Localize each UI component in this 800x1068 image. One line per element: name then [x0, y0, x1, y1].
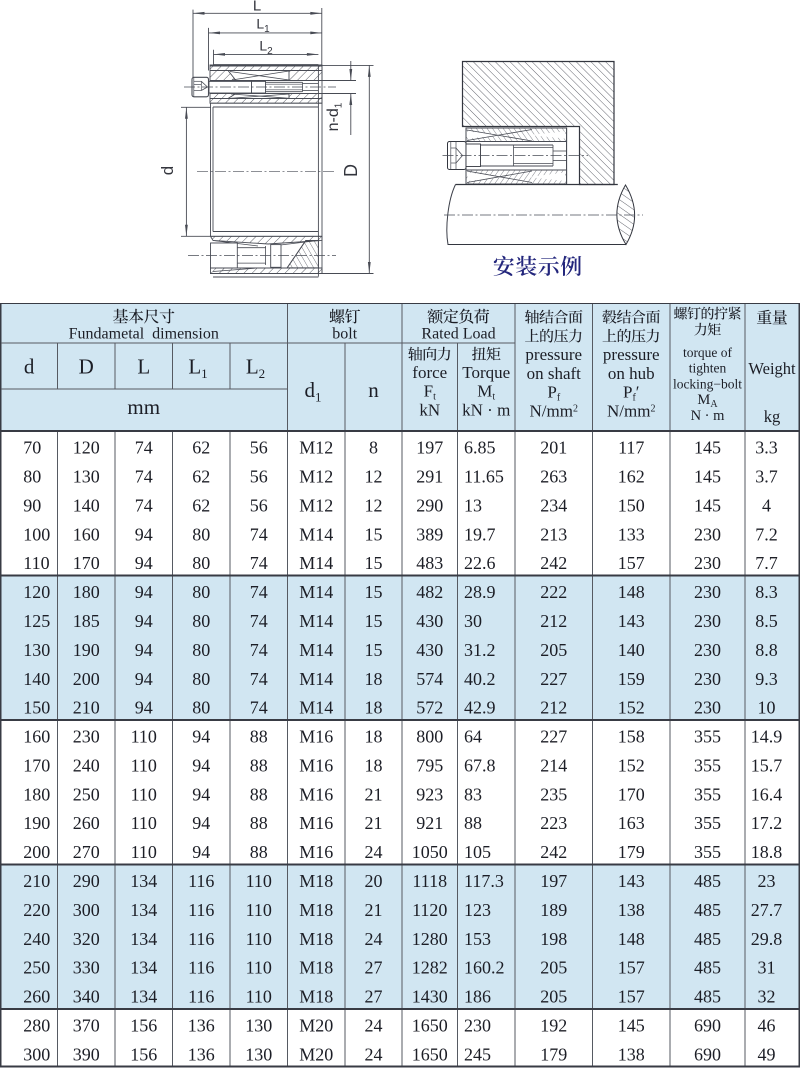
svg-text:690: 690 [694, 1044, 721, 1064]
svg-text:110: 110 [246, 987, 272, 1007]
svg-text:690: 690 [694, 1016, 721, 1036]
svg-text:170: 170 [73, 553, 100, 573]
svg-text:15.7: 15.7 [751, 755, 783, 775]
svg-text:94: 94 [135, 553, 153, 573]
svg-text:110: 110 [131, 727, 157, 747]
svg-text:185: 185 [73, 611, 100, 631]
svg-text:M16: M16 [299, 813, 333, 833]
svg-text:210: 210 [73, 698, 100, 718]
svg-text:M14: M14 [299, 524, 333, 544]
svg-text:227: 227 [540, 727, 567, 747]
svg-text:138: 138 [618, 1044, 645, 1064]
svg-text:230: 230 [694, 640, 721, 660]
svg-text:430: 430 [416, 611, 443, 631]
svg-text:M16: M16 [299, 784, 333, 804]
svg-text:105: 105 [464, 842, 491, 862]
svg-text:M18: M18 [299, 900, 333, 920]
svg-text:80: 80 [192, 669, 210, 689]
svg-text:4: 4 [762, 495, 771, 515]
svg-text:6.85: 6.85 [464, 438, 496, 458]
svg-text:150: 150 [618, 495, 645, 515]
svg-text:Fundametal dimension: Fundametal dimension [69, 326, 219, 343]
svg-text:74: 74 [250, 582, 268, 602]
svg-text:123: 123 [464, 900, 491, 920]
svg-text:M18: M18 [299, 958, 333, 978]
svg-text:94: 94 [192, 727, 210, 747]
svg-text:13: 13 [464, 495, 482, 515]
svg-text:pressure: pressure [603, 345, 660, 364]
svg-text:116: 116 [188, 929, 214, 949]
svg-text:291: 291 [416, 467, 443, 487]
svg-text:94: 94 [135, 611, 153, 631]
svg-text:110: 110 [246, 871, 272, 891]
svg-text:485: 485 [694, 871, 721, 891]
svg-text:340: 340 [73, 987, 100, 1007]
svg-text:27: 27 [365, 958, 383, 978]
svg-text:62: 62 [192, 467, 210, 487]
svg-text:1118: 1118 [412, 871, 447, 891]
svg-text:88: 88 [250, 727, 268, 747]
svg-text:110: 110 [131, 784, 157, 804]
svg-text:80: 80 [23, 467, 41, 487]
svg-text:27: 27 [365, 987, 383, 1007]
svg-text:355: 355 [694, 784, 721, 804]
svg-text:134: 134 [130, 987, 157, 1007]
svg-text:260: 260 [73, 813, 100, 833]
svg-text:300: 300 [73, 900, 100, 920]
svg-text:198: 198 [540, 929, 567, 949]
svg-text:250: 250 [73, 784, 100, 804]
svg-text:140: 140 [618, 640, 645, 660]
svg-text:locking−bolt: locking−bolt [673, 377, 742, 392]
svg-text:L: L [137, 355, 150, 379]
svg-text:355: 355 [694, 813, 721, 833]
svg-text:290: 290 [416, 495, 443, 515]
svg-text:140: 140 [23, 669, 50, 689]
svg-text:8: 8 [369, 438, 378, 458]
svg-text:485: 485 [694, 900, 721, 920]
svg-text:M16: M16 [299, 842, 333, 862]
svg-text:7.2: 7.2 [755, 524, 778, 544]
svg-text:230: 230 [694, 553, 721, 573]
svg-text:20: 20 [365, 871, 383, 891]
svg-text:17.2: 17.2 [751, 813, 783, 833]
svg-text:116: 116 [188, 958, 214, 978]
svg-text:130: 130 [245, 1044, 272, 1064]
svg-text:80: 80 [192, 640, 210, 660]
svg-text:bolt: bolt [332, 326, 357, 343]
svg-text:120: 120 [23, 582, 50, 602]
svg-text:145: 145 [694, 467, 721, 487]
svg-text:Torque: Torque [462, 363, 510, 382]
svg-text:140: 140 [73, 495, 100, 515]
svg-text:201: 201 [540, 438, 567, 458]
svg-text:143: 143 [618, 611, 645, 631]
svg-text:1120: 1120 [412, 900, 447, 920]
svg-text:485: 485 [694, 958, 721, 978]
svg-text:485: 485 [694, 929, 721, 949]
svg-text:30: 30 [464, 611, 482, 631]
svg-text:8.8: 8.8 [755, 640, 778, 660]
svg-text:240: 240 [73, 755, 100, 775]
svg-text:156: 156 [130, 1016, 157, 1036]
svg-text:21: 21 [365, 900, 383, 920]
svg-text:370: 370 [73, 1016, 100, 1036]
svg-text:1050: 1050 [412, 842, 448, 862]
svg-text:94: 94 [135, 524, 153, 544]
svg-text:28.9: 28.9 [464, 582, 496, 602]
svg-text:150: 150 [23, 698, 50, 718]
svg-text:130: 130 [245, 1016, 272, 1036]
svg-text:94: 94 [192, 755, 210, 775]
svg-text:260: 260 [23, 987, 50, 1007]
svg-text:10: 10 [758, 698, 776, 718]
svg-text:88: 88 [250, 813, 268, 833]
svg-text:D: D [341, 164, 361, 177]
svg-text:74: 74 [250, 553, 268, 573]
svg-text:485: 485 [694, 987, 721, 1007]
svg-text:M12: M12 [299, 467, 333, 487]
svg-text:390: 390 [73, 1044, 100, 1064]
svg-text:242: 242 [540, 842, 567, 862]
svg-text:kN: kN [419, 401, 440, 420]
svg-text:M20: M20 [299, 1044, 333, 1064]
svg-text:15: 15 [365, 611, 383, 631]
svg-text:134: 134 [130, 929, 157, 949]
svg-text:80: 80 [192, 698, 210, 718]
svg-text:100: 100 [23, 524, 50, 544]
svg-text:3.3: 3.3 [755, 438, 778, 458]
svg-text:67.8: 67.8 [464, 755, 496, 775]
svg-text:240: 240 [23, 929, 50, 949]
svg-text:110: 110 [131, 813, 157, 833]
svg-text:227: 227 [540, 669, 567, 689]
svg-text:160: 160 [23, 727, 50, 747]
svg-text:74: 74 [135, 438, 153, 458]
svg-text:force: force [412, 363, 447, 382]
svg-text:M16: M16 [299, 755, 333, 775]
svg-text:197: 197 [416, 438, 443, 458]
svg-text:330: 330 [73, 958, 100, 978]
svg-text:n: n [368, 378, 379, 402]
svg-text:M20: M20 [299, 1016, 333, 1036]
svg-text:M18: M18 [299, 929, 333, 949]
svg-text:1430: 1430 [412, 987, 448, 1007]
svg-text:64: 64 [464, 727, 482, 747]
svg-text:116: 116 [188, 900, 214, 920]
svg-text:116: 116 [188, 871, 214, 891]
svg-text:21: 21 [365, 784, 383, 804]
svg-text:88: 88 [464, 813, 482, 833]
svg-text:56: 56 [250, 438, 268, 458]
svg-text:on shaft: on shaft [527, 364, 582, 383]
svg-text:24: 24 [365, 842, 383, 862]
svg-text:M14: M14 [299, 640, 333, 660]
svg-text:on hub: on hub [608, 364, 655, 383]
svg-text:153: 153 [464, 929, 491, 949]
svg-text:223: 223 [540, 813, 567, 833]
svg-text:24: 24 [365, 1044, 383, 1064]
svg-text:14.9: 14.9 [751, 727, 783, 747]
svg-text:94: 94 [192, 813, 210, 833]
svg-text:18: 18 [365, 755, 383, 775]
svg-text:1280: 1280 [412, 929, 448, 949]
svg-text:430: 430 [416, 640, 443, 660]
svg-text:L: L [253, 0, 261, 15]
svg-text:117: 117 [618, 438, 644, 458]
svg-text:3.7: 3.7 [755, 467, 778, 487]
svg-text:1282: 1282 [412, 958, 448, 978]
svg-text:290: 290 [73, 871, 100, 891]
svg-text:220: 220 [23, 900, 50, 920]
svg-text:N/mm2: N/mm2 [607, 402, 655, 421]
svg-text:200: 200 [23, 842, 50, 862]
svg-text:156: 156 [130, 1044, 157, 1064]
svg-text:190: 190 [73, 640, 100, 660]
svg-text:130: 130 [23, 640, 50, 660]
svg-text:152: 152 [618, 698, 645, 718]
svg-text:94: 94 [135, 698, 153, 718]
svg-text:N · m: N · m [691, 408, 726, 424]
svg-text:280: 280 [23, 1016, 50, 1036]
svg-text:212: 212 [540, 698, 567, 718]
svg-text:213: 213 [540, 524, 567, 544]
svg-text:32: 32 [758, 987, 776, 1007]
svg-text:158: 158 [618, 727, 645, 747]
svg-text:320: 320 [73, 929, 100, 949]
svg-text:tighten: tighten [689, 361, 727, 376]
svg-text:355: 355 [694, 755, 721, 775]
svg-text:230: 230 [694, 669, 721, 689]
svg-text:197: 197 [540, 871, 567, 891]
svg-text:120: 120 [73, 438, 100, 458]
svg-text:kN · m: kN · m [462, 401, 510, 420]
svg-text:90: 90 [23, 495, 41, 515]
svg-text:80: 80 [192, 524, 210, 544]
svg-text:482: 482 [416, 582, 443, 602]
svg-text:80: 80 [192, 611, 210, 631]
svg-text:160: 160 [73, 524, 100, 544]
svg-text:263: 263 [540, 467, 567, 487]
svg-text:230: 230 [694, 698, 721, 718]
svg-text:22.6: 22.6 [464, 553, 496, 573]
svg-text:d: d [158, 166, 177, 175]
svg-text:torque of: torque of [683, 345, 733, 360]
svg-text:18: 18 [365, 698, 383, 718]
svg-text:Pf′: Pf′ [623, 383, 640, 404]
svg-text:145: 145 [694, 438, 721, 458]
svg-text:136: 136 [188, 1016, 215, 1036]
svg-text:18.8: 18.8 [751, 842, 783, 862]
svg-text:M12: M12 [299, 495, 333, 515]
svg-text:355: 355 [694, 727, 721, 747]
svg-text:190: 190 [23, 813, 50, 833]
svg-text:M18: M18 [299, 871, 333, 891]
svg-text:Weight: Weight [748, 359, 796, 378]
svg-text:74: 74 [250, 640, 268, 660]
svg-text:M16: M16 [299, 727, 333, 747]
svg-text:134: 134 [130, 871, 157, 891]
svg-text:133: 133 [618, 524, 645, 544]
svg-text:170: 170 [23, 755, 50, 775]
svg-text:M14: M14 [299, 553, 333, 573]
svg-text:31.2: 31.2 [464, 640, 496, 660]
svg-text:130: 130 [73, 467, 100, 487]
svg-text:230: 230 [694, 524, 721, 544]
svg-text:N/mm2: N/mm2 [530, 402, 578, 421]
svg-text:1650: 1650 [412, 1016, 448, 1036]
svg-text:46: 46 [758, 1016, 776, 1036]
svg-text:205: 205 [540, 958, 567, 978]
svg-text:11.65: 11.65 [464, 467, 504, 487]
svg-text:27.7: 27.7 [751, 900, 783, 920]
svg-text:40.2: 40.2 [464, 669, 496, 689]
svg-text:88: 88 [250, 755, 268, 775]
svg-text:18: 18 [365, 727, 383, 747]
svg-text:23: 23 [758, 871, 776, 891]
svg-text:170: 170 [618, 784, 645, 804]
svg-text:189: 189 [540, 900, 567, 920]
svg-text:15: 15 [365, 524, 383, 544]
svg-text:145: 145 [694, 495, 721, 515]
svg-text:d: d [24, 355, 35, 379]
svg-text:70: 70 [23, 438, 41, 458]
svg-text:9.3: 9.3 [755, 669, 778, 689]
svg-text:8.3: 8.3 [755, 582, 778, 602]
svg-text:212: 212 [540, 611, 567, 631]
svg-text:110: 110 [23, 553, 49, 573]
svg-text:56: 56 [250, 495, 268, 515]
svg-text:163: 163 [618, 813, 645, 833]
svg-text:7.7: 7.7 [755, 553, 778, 573]
svg-text:270: 270 [73, 842, 100, 862]
svg-text:L1: L1 [256, 16, 270, 35]
svg-text:74: 74 [250, 669, 268, 689]
svg-text:180: 180 [73, 582, 100, 602]
svg-text:230: 230 [464, 1016, 491, 1036]
svg-text:94: 94 [192, 842, 210, 862]
svg-text:235: 235 [540, 784, 567, 804]
svg-text:80: 80 [192, 582, 210, 602]
svg-text:19.7: 19.7 [464, 524, 496, 544]
svg-text:110: 110 [246, 900, 272, 920]
svg-text:355: 355 [694, 842, 721, 862]
svg-text:12: 12 [365, 495, 383, 515]
svg-text:145: 145 [618, 1016, 645, 1036]
svg-text:125: 125 [23, 611, 50, 631]
svg-text:74: 74 [135, 495, 153, 515]
svg-text:15: 15 [365, 582, 383, 602]
svg-text:152: 152 [618, 755, 645, 775]
svg-text:83: 83 [464, 784, 482, 804]
svg-text:572: 572 [416, 698, 443, 718]
svg-text:230: 230 [694, 611, 721, 631]
svg-text:800: 800 [416, 727, 443, 747]
svg-text:88: 88 [250, 842, 268, 862]
svg-text:M14: M14 [299, 698, 333, 718]
svg-text:245: 245 [464, 1044, 491, 1064]
svg-text:mm: mm [127, 395, 160, 419]
svg-text:kg: kg [764, 407, 781, 426]
svg-text:157: 157 [618, 958, 645, 978]
svg-text:574: 574 [416, 669, 443, 689]
svg-text:138: 138 [618, 900, 645, 920]
svg-text:pressure: pressure [525, 345, 582, 364]
svg-text:24: 24 [365, 1016, 383, 1036]
svg-text:49: 49 [758, 1044, 776, 1064]
svg-text:16.4: 16.4 [751, 784, 783, 804]
svg-text:29.8: 29.8 [751, 929, 783, 949]
svg-text:74: 74 [250, 611, 268, 631]
svg-text:74: 74 [135, 467, 153, 487]
svg-text:18: 18 [365, 669, 383, 689]
svg-text:94: 94 [192, 784, 210, 804]
svg-text:62: 62 [192, 438, 210, 458]
svg-text:M14: M14 [299, 669, 333, 689]
svg-text:250: 250 [23, 958, 50, 978]
svg-text:222: 222 [540, 582, 567, 602]
svg-text:94: 94 [135, 640, 153, 660]
svg-text:117.3: 117.3 [464, 871, 504, 891]
svg-text:180: 180 [23, 784, 50, 804]
svg-text:234: 234 [540, 495, 567, 515]
svg-text:205: 205 [540, 987, 567, 1007]
svg-text:242: 242 [540, 553, 567, 573]
svg-text:179: 179 [618, 842, 645, 862]
svg-text:795: 795 [416, 755, 443, 775]
svg-text:148: 148 [618, 582, 645, 602]
svg-text:134: 134 [130, 900, 157, 920]
svg-text:116: 116 [188, 987, 214, 1007]
svg-text:389: 389 [416, 524, 443, 544]
svg-text:62: 62 [192, 495, 210, 515]
svg-text:110: 110 [131, 842, 157, 862]
svg-text:M14: M14 [299, 582, 333, 602]
svg-text:483: 483 [416, 553, 443, 573]
svg-text:110: 110 [246, 929, 272, 949]
svg-text:136: 136 [188, 1044, 215, 1064]
svg-text:1650: 1650 [412, 1044, 448, 1064]
svg-text:M14: M14 [299, 611, 333, 631]
svg-text:205: 205 [540, 640, 567, 660]
svg-text:15: 15 [365, 553, 383, 573]
svg-text:230: 230 [694, 582, 721, 602]
svg-text:80: 80 [192, 553, 210, 573]
svg-text:74: 74 [250, 524, 268, 544]
svg-text:148: 148 [618, 929, 645, 949]
svg-text:921: 921 [416, 813, 443, 833]
svg-text:56: 56 [250, 467, 268, 487]
svg-text:24: 24 [365, 929, 383, 949]
svg-text:157: 157 [618, 987, 645, 1007]
svg-text:143: 143 [618, 871, 645, 891]
svg-text:210: 210 [23, 871, 50, 891]
svg-text:31: 31 [758, 958, 776, 978]
svg-text:M12: M12 [299, 438, 333, 458]
svg-text:160.2: 160.2 [464, 958, 505, 978]
svg-text:110: 110 [131, 755, 157, 775]
svg-text:74: 74 [250, 698, 268, 718]
svg-text:110: 110 [246, 958, 272, 978]
svg-text:186: 186 [464, 987, 491, 1007]
svg-text:42.9: 42.9 [464, 698, 496, 718]
svg-text:192: 192 [540, 1016, 567, 1036]
svg-text:157: 157 [618, 553, 645, 573]
svg-text:88: 88 [250, 784, 268, 804]
svg-text:200: 200 [73, 669, 100, 689]
svg-text:214: 214 [540, 755, 567, 775]
svg-text:159: 159 [618, 669, 645, 689]
